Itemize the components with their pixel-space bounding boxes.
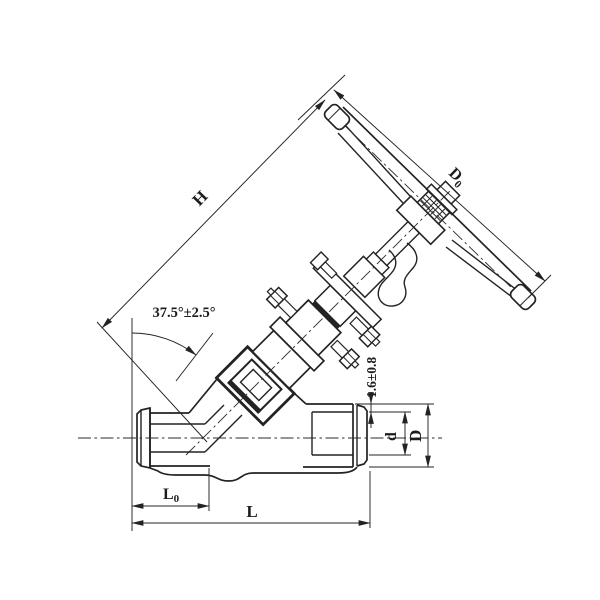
dim-d-label: d <box>383 432 400 441</box>
dim-L0-label: L0 <box>163 486 180 505</box>
body-bottom-outline <box>150 467 357 481</box>
left-flank-line <box>189 379 217 413</box>
angle-label: 37.5°±2.5° <box>152 305 215 321</box>
gap-label: 1.6±0.8 <box>364 357 379 398</box>
valve-technical-drawing: H D0 37.5°±2.5° 1.6±0.8 d D L0 <box>0 0 600 600</box>
dim-H: H <box>97 75 345 442</box>
dim-d: d <box>369 412 411 455</box>
drawing-canvas: H D0 37.5°±2.5° 1.6±0.8 d D L0 <box>0 0 600 600</box>
gland-bolt-2 <box>328 338 363 373</box>
wheel-spoke-upper <box>346 126 410 196</box>
right-socket-end <box>303 404 367 467</box>
right-flank-line <box>294 393 306 404</box>
dim-D-label: D <box>406 430 425 442</box>
stem-axis-centerline <box>186 191 450 455</box>
dim-H-label: H <box>189 187 212 210</box>
dim-L-label: L <box>246 502 257 521</box>
